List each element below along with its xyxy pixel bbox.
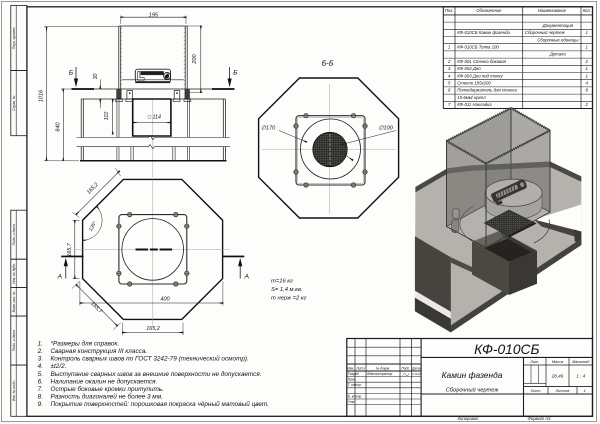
svg-text:Полкодержатель для стекла: Полкодержатель для стекла bbox=[457, 88, 517, 93]
svg-text:Поз.: Поз. bbox=[445, 8, 453, 13]
svg-text:165,7: 165,7 bbox=[67, 242, 73, 256]
svg-text:Утв.: Утв. bbox=[348, 400, 355, 404]
svg-text:Б: Б bbox=[69, 70, 74, 77]
svg-text:1.: 1. bbox=[38, 340, 43, 347]
svg-text:m=16 кг: m=16 кг bbox=[271, 279, 293, 285]
svg-text:Взам. инв. №: Взам. инв. № bbox=[12, 291, 16, 312]
svg-text:Детали: Детали bbox=[549, 52, 567, 57]
svg-text:Налипание окалин не допускаетс: Налипание окалин не допускается. bbox=[51, 377, 158, 385]
svg-text:8.: 8. bbox=[38, 394, 43, 401]
svg-text:m нерж =2 кг: m нерж =2 кг bbox=[271, 296, 307, 302]
svg-text:КФ-010СБ: КФ-010СБ bbox=[474, 342, 539, 357]
svg-text:Инв. № дубл.: Инв. № дубл. bbox=[12, 263, 16, 284]
svg-text:Стекло 185х200: Стекло 185х200 bbox=[457, 80, 491, 85]
svg-text:Разраб.: Разраб. bbox=[348, 372, 360, 376]
svg-text:7.: 7. bbox=[38, 386, 43, 393]
svg-text:165,2: 165,2 bbox=[146, 326, 160, 332]
svg-text:Кол.: Кол. bbox=[583, 8, 591, 13]
svg-text:Сборочные единицы: Сборочные единицы bbox=[537, 37, 579, 42]
svg-text:4.: 4. bbox=[38, 363, 43, 370]
svg-text:КФ-010СБ Топка 100: КФ-010СБ Топка 100 bbox=[457, 44, 499, 49]
svg-text:9.: 9. bbox=[38, 401, 43, 408]
svg-text:6.: 6. bbox=[38, 378, 43, 385]
svg-text:Справ. №: Справ. № bbox=[12, 95, 16, 111]
svg-text:Пров.: Пров. bbox=[348, 378, 357, 382]
svg-text:Разность диагоналей не более 3: Разность диагоналей не более 3 мм. bbox=[51, 393, 163, 401]
svg-text:Администратор: Администратор bbox=[366, 372, 393, 376]
svg-text:Масштаб: Масштаб bbox=[572, 360, 590, 364]
svg-text:Лист: Лист bbox=[355, 366, 365, 370]
svg-text:1: 1 bbox=[584, 388, 586, 393]
svg-text:□ 114: □ 114 bbox=[148, 115, 161, 121]
svg-text:Документация: Документация bbox=[542, 23, 574, 28]
svg-text:Сварная конструкция III класса: Сварная конструкция III класса. bbox=[51, 348, 148, 355]
svg-text:2.: 2. bbox=[37, 348, 43, 355]
svg-text:Контроль сварных швов по ГОСТ: Контроль сварных швов по ГОСТ 3242-79 (т… bbox=[51, 355, 249, 363]
svg-text:Формат А3: Формат А3 bbox=[528, 416, 552, 421]
svg-text:Наименование: Наименование bbox=[538, 8, 567, 13]
svg-text:А: А bbox=[57, 274, 63, 281]
svg-text:Копировал: Копировал bbox=[458, 416, 479, 421]
svg-text:Выступание сварных швов за вне: Выступание сварных швов за внешние повер… bbox=[51, 370, 262, 378]
svg-text:200: 200 bbox=[192, 53, 198, 64]
svg-text:Масса: Масса bbox=[552, 360, 563, 364]
svg-text:15-6мм/ крепл: 15-6мм/ крепл bbox=[457, 95, 486, 100]
svg-text:1016: 1016 bbox=[39, 89, 45, 102]
svg-text:Изм.: Изм. bbox=[347, 366, 354, 370]
svg-text:КФ-001 Стенка боковая: КФ-001 Стенка боковая bbox=[457, 59, 506, 64]
svg-text:400: 400 bbox=[160, 297, 170, 303]
svg-text:1 : 4: 1 : 4 bbox=[576, 374, 585, 379]
svg-text:∅100: ∅100 bbox=[379, 126, 394, 132]
svg-text:Обозначение: Обозначение bbox=[476, 8, 502, 13]
svg-text:Инв. № подл.: Инв. № подл. bbox=[12, 380, 16, 401]
svg-text:Сборочный чертеж: Сборочный чертеж bbox=[525, 30, 566, 35]
svg-text:102: 102 bbox=[104, 112, 110, 121]
svg-text:Б-Б: Б-Б bbox=[322, 59, 334, 68]
svg-text:195: 195 bbox=[149, 12, 159, 18]
svg-text:Сборочный чертеж: Сборочный чертеж bbox=[446, 387, 500, 394]
svg-text:Б: Б bbox=[233, 70, 238, 77]
svg-text:8.10.20: 8.10.20 bbox=[412, 372, 421, 376]
svg-text:3.: 3. bbox=[38, 356, 43, 363]
svg-text:Лит.: Лит. bbox=[529, 360, 539, 364]
svg-text:Лист: Лист bbox=[530, 389, 541, 393]
svg-text:S= 1,4 м.кв.: S= 1,4 м.кв. bbox=[271, 287, 303, 293]
svg-text:840: 840 bbox=[55, 121, 61, 131]
svg-text:КФ-011 Накладка: КФ-011 Накладка bbox=[457, 102, 492, 107]
svg-text:28,46: 28,46 bbox=[551, 374, 564, 379]
svg-text:30: 30 bbox=[93, 74, 99, 80]
svg-text:Острые боковые кромки притупит: Острые боковые кромки притупить. bbox=[51, 385, 164, 393]
svg-text:КФ-010СБ Камин фазенда: КФ-010СБ Камин фазенда bbox=[457, 30, 510, 35]
svg-text:*Размеры для справок.: *Размеры для справок. bbox=[51, 339, 120, 347]
svg-text:№ докум.: № докум. bbox=[376, 366, 390, 370]
svg-text:Подп. и дата: Подп. и дата bbox=[12, 224, 16, 245]
svg-text:Подп.: Подп. bbox=[401, 366, 410, 370]
svg-text:±t2/2.: ±t2/2. bbox=[51, 363, 67, 370]
svg-text:Камин фазенда: Камин фазенда bbox=[442, 370, 503, 380]
svg-text:Листов: Листов bbox=[555, 389, 570, 393]
svg-text:Перв. примен.: Перв. примен. bbox=[12, 27, 16, 50]
svg-text:∅170: ∅170 bbox=[261, 126, 276, 132]
svg-text:Дата: Дата bbox=[411, 366, 421, 370]
svg-text:А: А bbox=[244, 274, 250, 281]
svg-text:Н. контр.: Н. контр. bbox=[348, 394, 362, 398]
svg-text:Покрытие поверхностей: порошко: Покрытие поверхностей: порошковая покрас… bbox=[51, 400, 269, 408]
svg-text:КФ-002 Дно: КФ-002 Дно bbox=[457, 66, 481, 71]
svg-text:КФ-003 Дно под топку: КФ-003 Дно под топку bbox=[457, 73, 503, 78]
svg-text:Подп. и дата: Подп. и дата bbox=[12, 330, 16, 351]
svg-text:Т. контр.: Т. контр. bbox=[348, 383, 362, 387]
svg-text:5.: 5. bbox=[38, 371, 43, 378]
svg-text:2: 2 bbox=[447, 59, 451, 64]
